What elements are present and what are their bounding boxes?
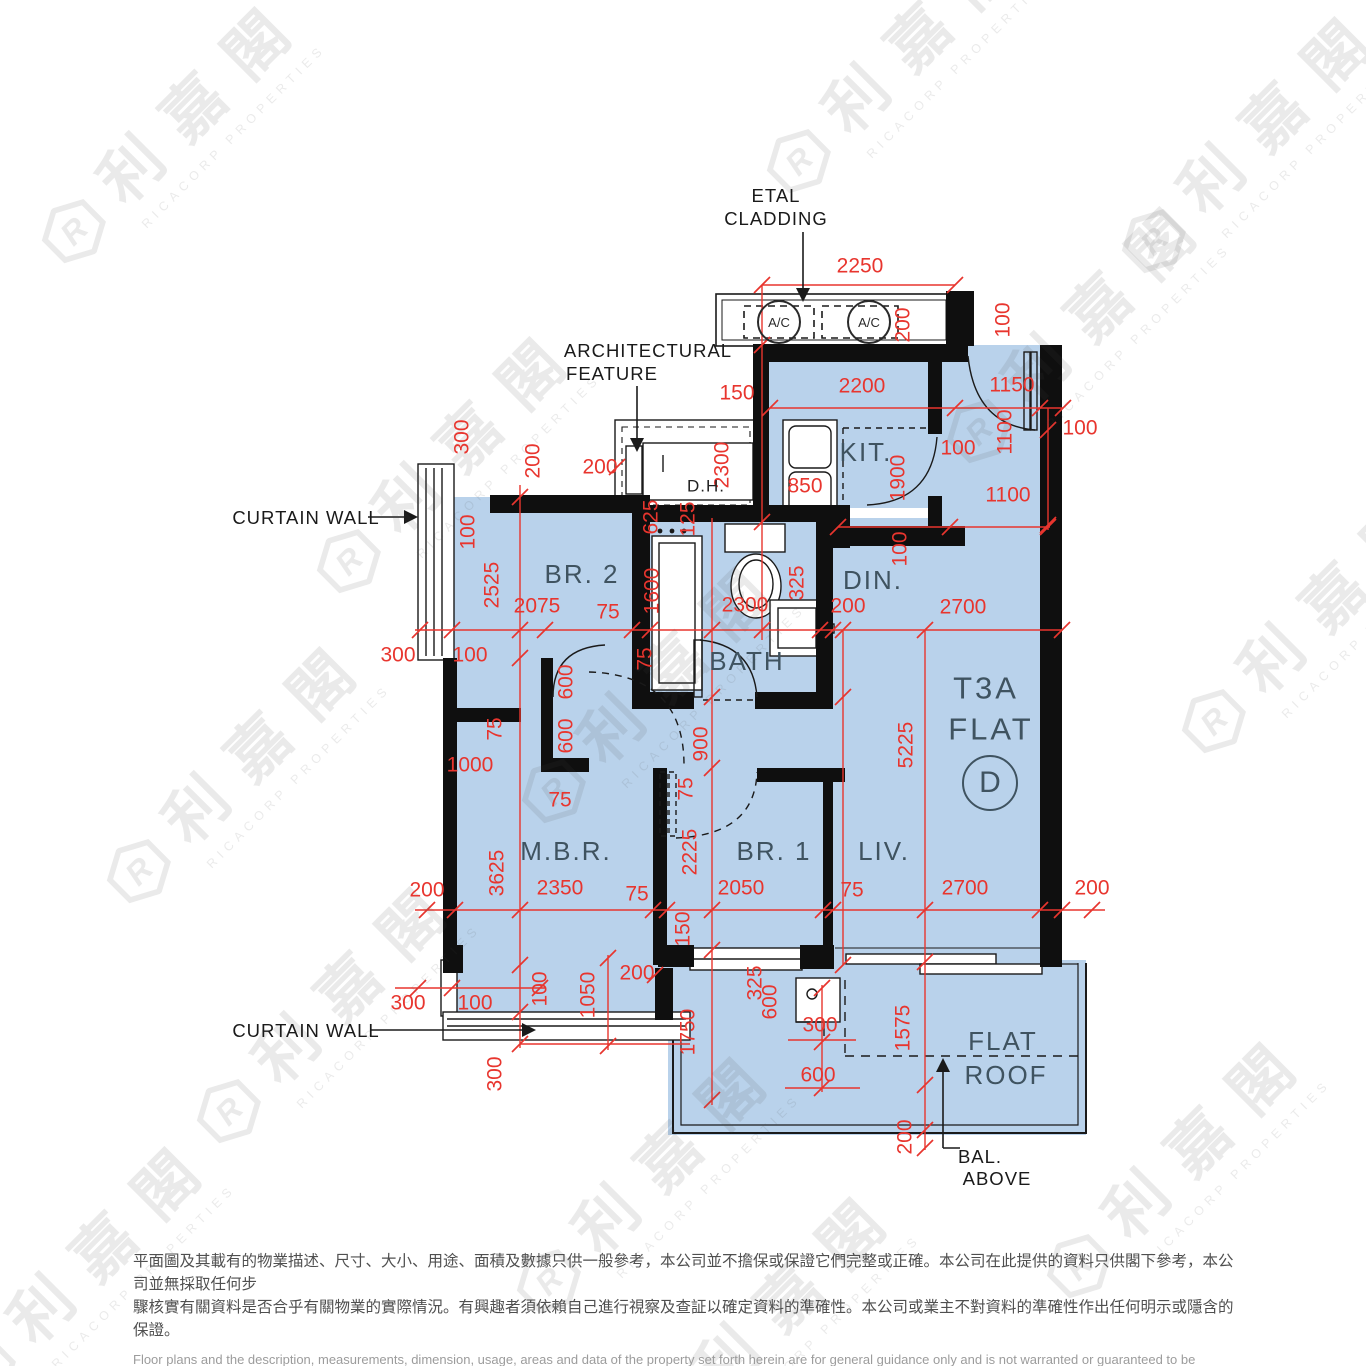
label-br-2: BR. 2 <box>544 561 619 587</box>
label-liv: LIV. <box>858 838 910 864</box>
label-t3a: T3A <box>953 673 1019 704</box>
dimension-200: 200 <box>1074 878 1109 899</box>
dimension-2300: 2300 <box>722 595 769 616</box>
dimension-150: 150 <box>673 911 694 946</box>
label-din: DIN. <box>843 567 903 593</box>
dimension-2050: 2050 <box>718 878 765 899</box>
dimension-850: 850 <box>787 476 822 497</box>
dimension-2350: 2350 <box>537 878 584 899</box>
dimension-200: 200 <box>830 596 865 617</box>
dimension-300: 300 <box>802 1015 837 1036</box>
label-bath: BATH <box>709 648 784 674</box>
dimension-100: 100 <box>530 971 551 1006</box>
label-kit: KIT. <box>840 439 893 465</box>
disclaimer-zh-line1: 平面圖及其載有的物業描述、尺寸、大小、用途、面積及數據只供一般參考，本公司並不擔… <box>133 1250 1245 1296</box>
dimension-1100: 1100 <box>995 409 1016 454</box>
disclaimer-en-line1: Floor plans and the description, measure… <box>133 1351 1245 1366</box>
dimension-300: 300 <box>380 645 415 666</box>
dimension-600: 600 <box>800 1065 835 1086</box>
dimension-1750: 1750 <box>678 1009 699 1056</box>
dimension-600: 600 <box>556 664 577 699</box>
label-flat: FLAT <box>948 714 1034 745</box>
annotation-bal: BAL. <box>958 1148 1002 1167</box>
dimension-100: 100 <box>458 514 479 549</box>
dimension-1575: 1575 <box>893 1005 914 1052</box>
label-a-c: A/C <box>757 300 801 344</box>
disclaimer-zh-line2: 驟核實有關資料是否合乎有關物業的實際情況。有興趣者須依賴自己進行視察及查証以確定… <box>133 1296 1245 1342</box>
dimension-2200: 2200 <box>839 376 886 397</box>
dimension-75: 75 <box>625 884 648 905</box>
dimension-300: 300 <box>485 1056 506 1091</box>
floorplan-page: R利嘉閣RICACORP PROPERTIESR利嘉閣RICACORP PROP… <box>0 0 1366 1366</box>
dimension-1150: 1150 <box>989 375 1034 396</box>
annotation-feature: FEATURE <box>566 365 658 384</box>
annotation-curtain-wall: CURTAIN WALL <box>232 1022 379 1041</box>
dimension-1600: 1600 <box>642 568 663 615</box>
dimension-300: 300 <box>390 993 425 1014</box>
annotation-cladding: CLADDING <box>724 210 828 229</box>
dimension-625: 625 <box>641 499 662 534</box>
dimension-200: 200 <box>523 443 544 478</box>
dimension-100: 100 <box>1062 418 1097 439</box>
label-d: D <box>962 755 1018 811</box>
dimension-75: 75 <box>596 602 619 623</box>
dimension-75: 75 <box>548 790 571 811</box>
label-m-b-r: M.B.R. <box>520 838 611 864</box>
label-br-1: BR. 1 <box>736 838 811 864</box>
dimension-150: 150 <box>719 383 754 404</box>
dimension-200: 200 <box>619 963 654 984</box>
dimension-200: 200 <box>582 457 617 478</box>
dimension-300: 300 <box>452 419 473 454</box>
dimension-100: 100 <box>993 302 1014 337</box>
dimension-1050: 1050 <box>578 972 599 1019</box>
dimension-100: 100 <box>452 645 487 666</box>
annotation-above: ABOVE <box>963 1170 1032 1189</box>
dimension-200: 200 <box>409 880 444 901</box>
label-layer: 2250200100150220011501001100100190011008… <box>0 0 1366 1366</box>
dimension-75: 75 <box>840 880 863 901</box>
dimension-100: 100 <box>890 531 911 566</box>
label-flat: FLAT <box>968 1028 1038 1054</box>
dimension-2525: 2525 <box>482 562 503 609</box>
dimension-75: 75 <box>485 717 506 740</box>
dimension-325: 325 <box>787 565 808 600</box>
dimension-200: 200 <box>893 307 914 342</box>
dimension-1000: 1000 <box>447 755 494 776</box>
dimension-100: 100 <box>457 993 492 1014</box>
annotation-architectural: ARCHITECTURAL <box>564 342 732 361</box>
dimension-2250: 2250 <box>837 256 884 277</box>
dimension-600: 600 <box>760 984 781 1019</box>
dimension-900: 900 <box>691 726 712 761</box>
annotation-curtain-wall: CURTAIN WALL <box>232 509 379 528</box>
label-roof: ROOF <box>964 1062 1047 1088</box>
dimension-200: 200 <box>895 1119 916 1154</box>
label-d-h: D.H. <box>687 478 725 495</box>
dimension-2225: 2225 <box>680 829 701 876</box>
dimension-3625: 3625 <box>487 850 508 897</box>
disclaimer: 平面圖及其載有的物業描述、尺寸、大小、用途、面積及數據只供一般參考，本公司並不擔… <box>133 1250 1245 1366</box>
dimension-2700: 2700 <box>940 597 987 618</box>
dimension-600: 600 <box>556 718 577 753</box>
dimension-75: 75 <box>676 777 697 800</box>
label-a-c: A/C <box>847 300 891 344</box>
dimension-2075: 2075 <box>514 596 561 617</box>
dimension-5225: 5225 <box>896 722 917 769</box>
dimension-100: 100 <box>940 438 975 459</box>
dimension-1100: 1100 <box>985 485 1030 506</box>
dimension-75: 75 <box>635 647 656 670</box>
dimension-125: 125 <box>678 501 699 536</box>
annotation-etal: ETAL <box>752 187 801 206</box>
dimension-2700: 2700 <box>942 878 989 899</box>
